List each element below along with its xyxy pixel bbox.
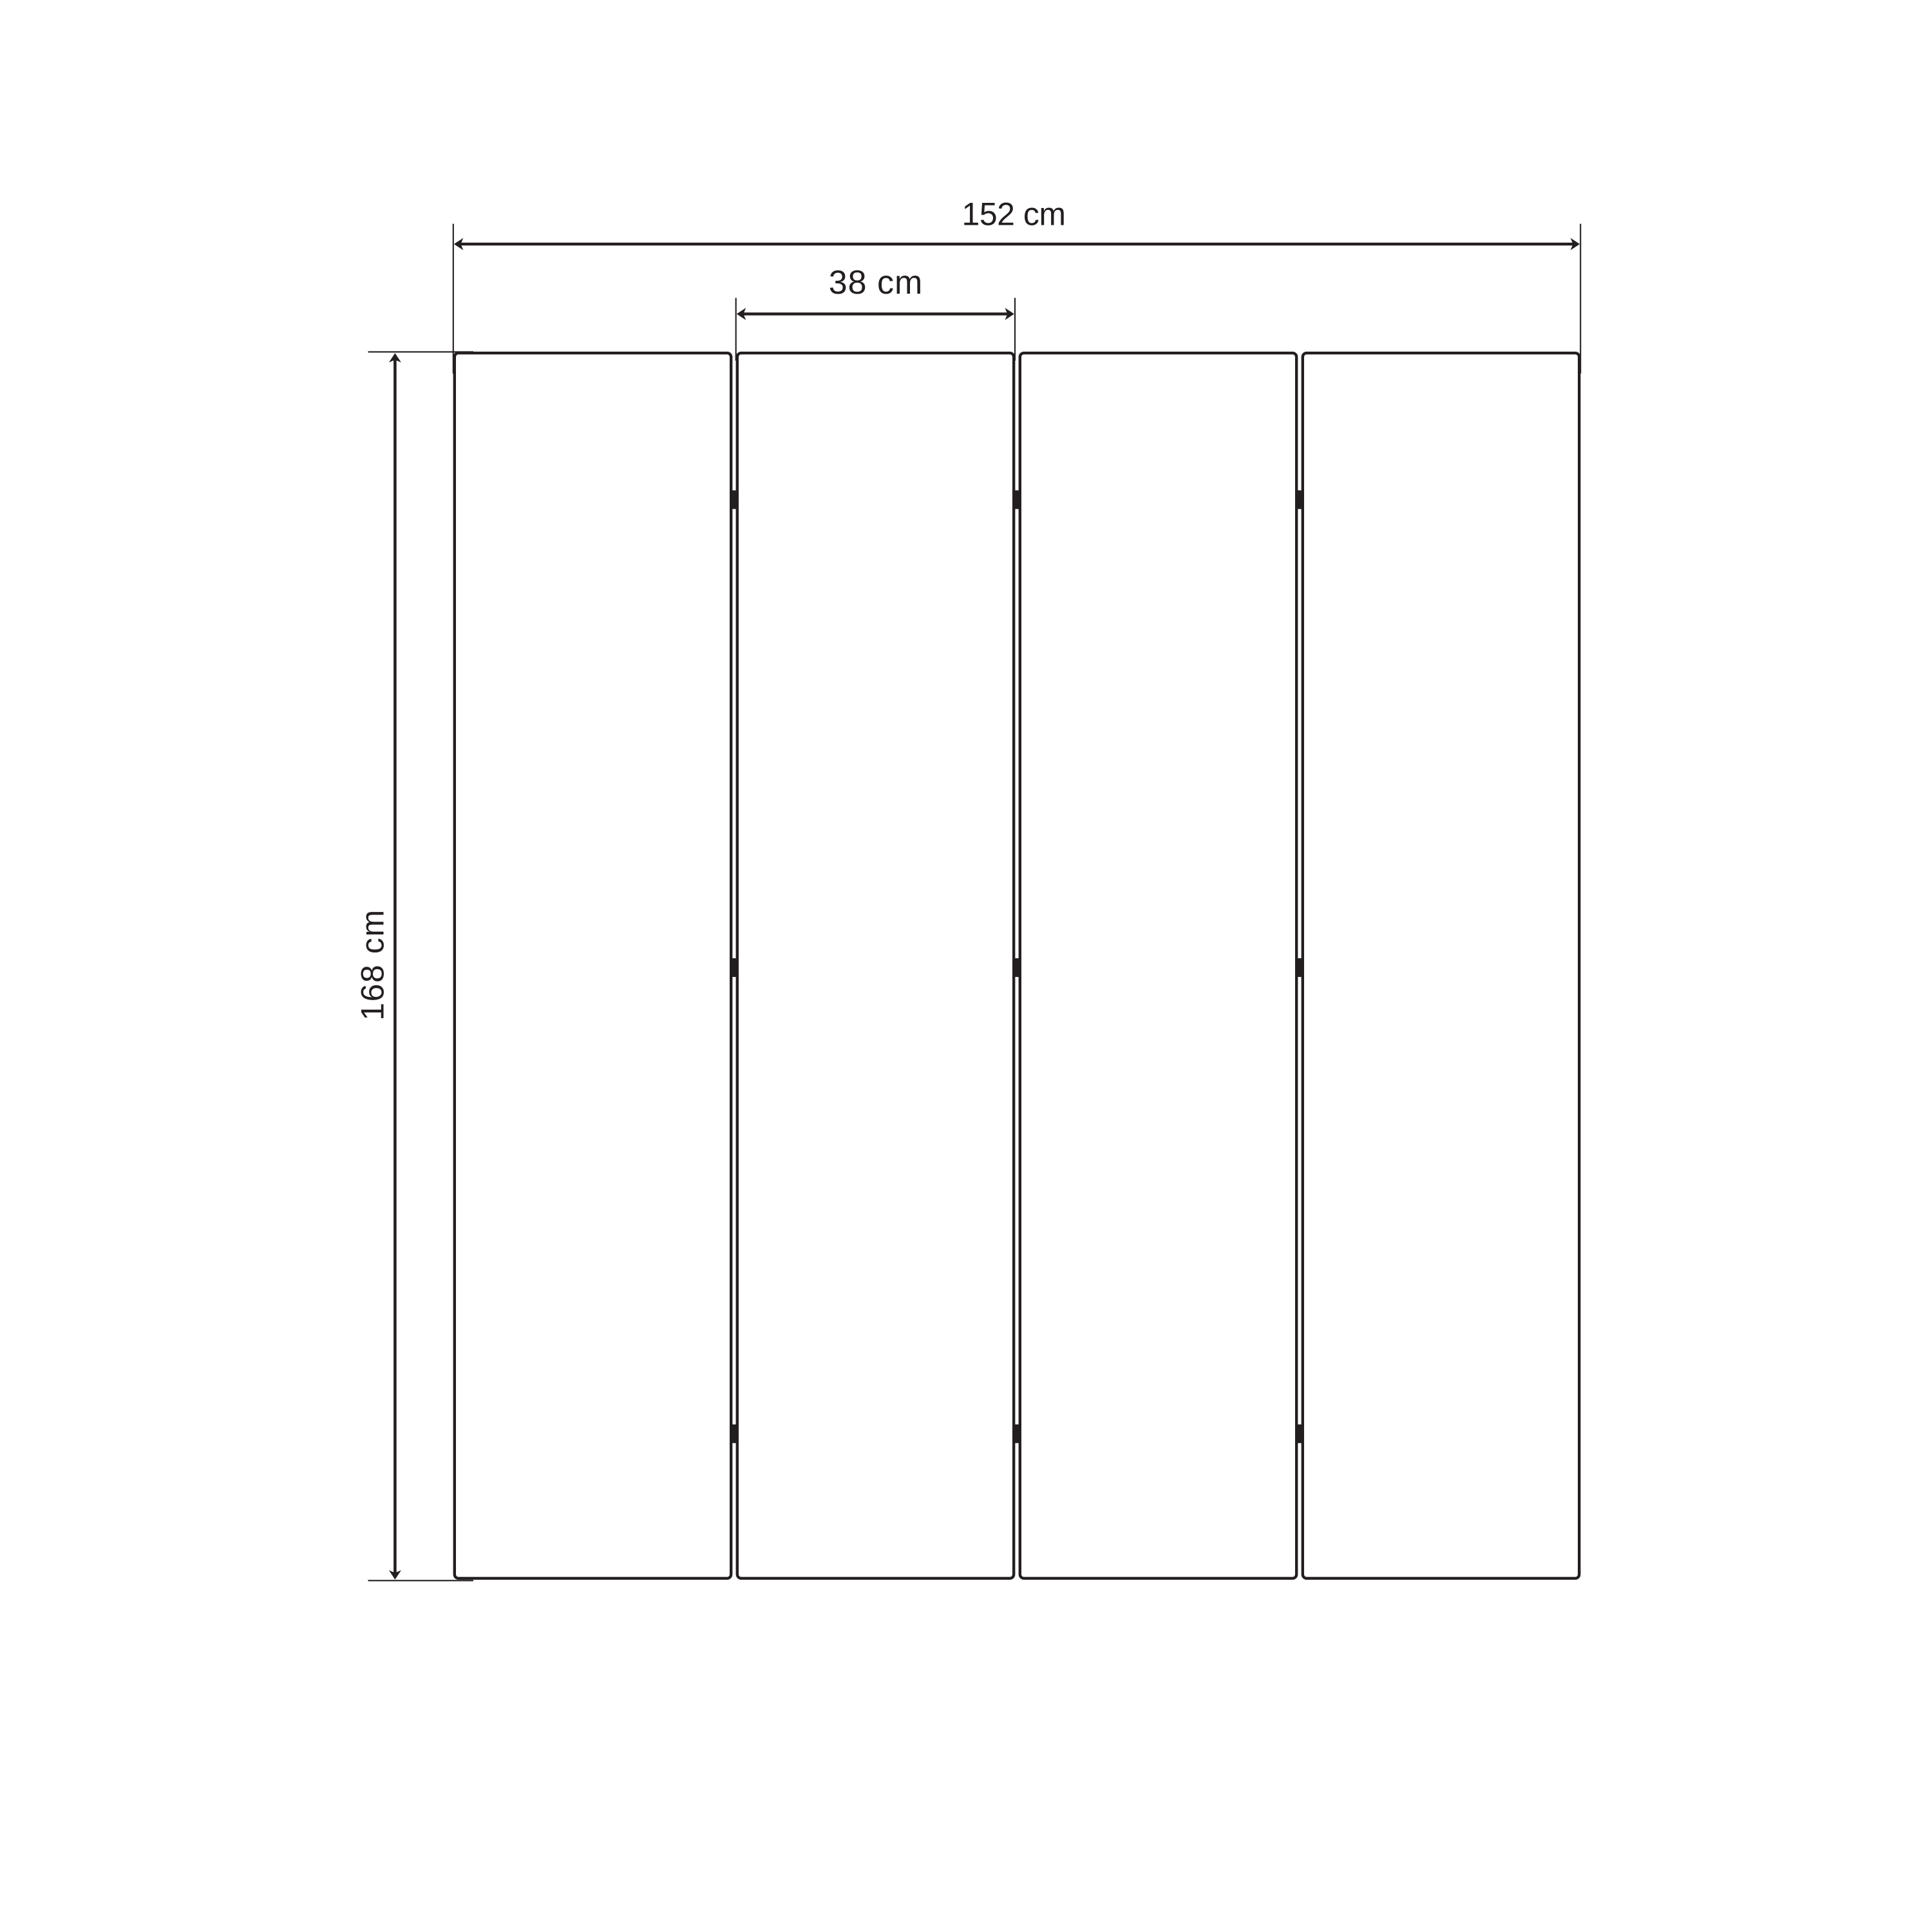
svg-text:38 cm: 38 cm <box>829 264 923 301</box>
svg-text:168 cm: 168 cm <box>355 909 391 1021</box>
svg-text:152 cm: 152 cm <box>962 196 1066 232</box>
